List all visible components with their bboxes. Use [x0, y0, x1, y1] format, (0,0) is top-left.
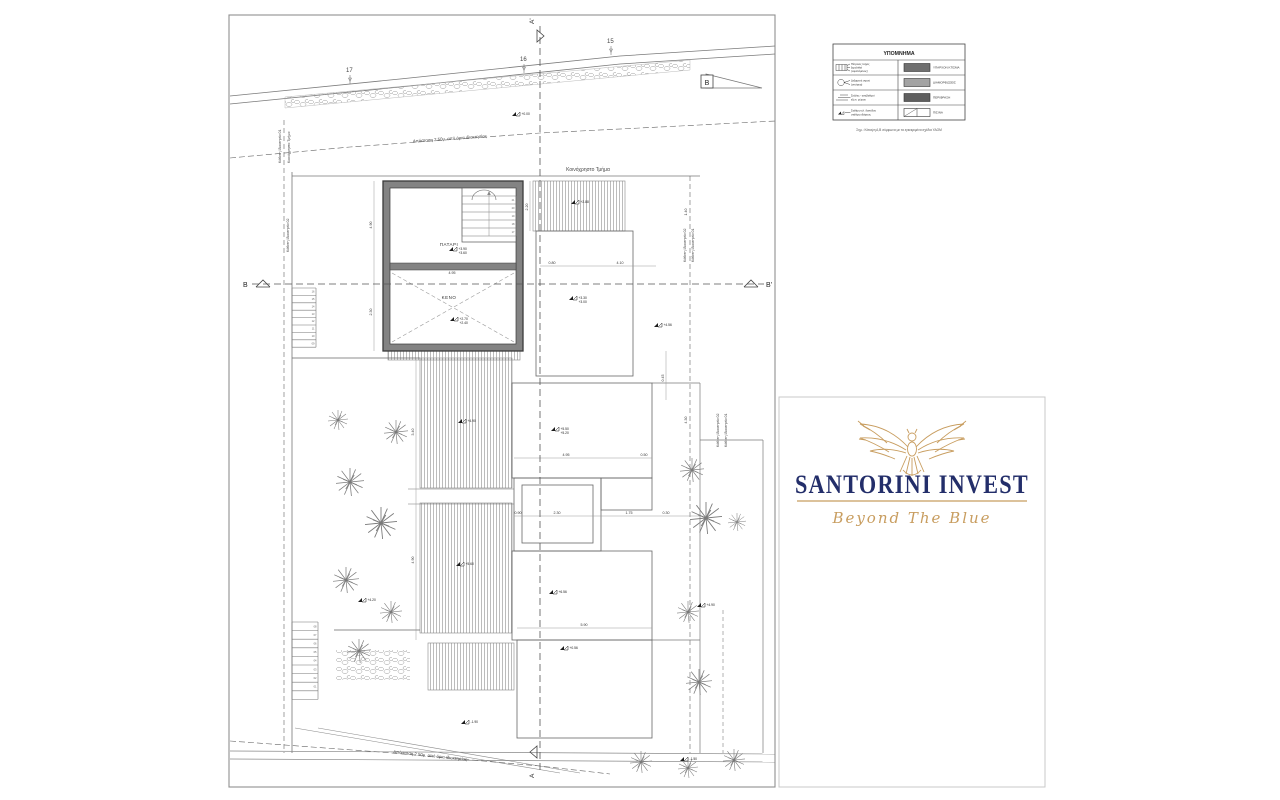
legend-swatch-label: ΥΠΑΡΧΟΝ ΚΤΙΣΜΑ [933, 66, 960, 70]
svg-text:+3.60: +3.60 [459, 251, 468, 255]
legend-swatch-label: ΠΙΣΙΝΑ [933, 111, 943, 115]
svg-text:+4.20: +4.20 [368, 598, 377, 602]
svg-text:+0.00: +0.00 [522, 112, 531, 116]
dimension-label: 0.90 [515, 511, 522, 515]
dimension-label: 1.75 [626, 511, 633, 515]
boundary-label: Κάθετη Ιδιοκτησία 02 [716, 413, 720, 447]
legend-item-label: (υφιστάμενος) [851, 69, 868, 73]
svg-text:+5.60: +5.60 [466, 562, 475, 566]
dimension-label: 0.50 [641, 453, 648, 457]
legend-swatch-label: ΔΙΑΜΟΡΦΩΣΕΙΣ [933, 81, 956, 85]
dimension-label: 4.10 [617, 261, 624, 265]
site-plan-screenshot: B Απόσταση 2.50μ. από όρια ιδιοκτησίας Κ… [0, 0, 1280, 800]
boundary-label: Κάθετη Ιδιοκτησία 01 [691, 228, 695, 262]
room-label-keno: ΚΕΝΟ [442, 295, 457, 300]
boundary-label: Κοινόχρηστο Τμήμα [287, 132, 291, 163]
legend-item-label: (υπόγεια) [851, 82, 862, 86]
svg-text:+6.56: +6.56 [559, 590, 568, 594]
svg-text:+0.56: +0.56 [570, 646, 579, 650]
company-name: SANTORINI INVEST [795, 470, 1029, 499]
legend-item-label: εξωτ. χώρου [851, 97, 866, 101]
legend-title: ΥΠΟΜΝΗΜΑ [883, 51, 914, 57]
dimension-label: 4.90 [411, 557, 415, 564]
section-label-b-left: B [243, 282, 248, 289]
legend: ΥΠΟΜΝΗΜΑ Σημ.: Κάτοψη Α,Β σύμφωνα με τα … [833, 44, 965, 132]
dimension-label: 4.30 [684, 417, 688, 424]
legend-item-label: ξερολιθιά [851, 66, 862, 70]
dimension-label: 2.20 [525, 204, 529, 211]
legend-item-label: Δεξαμενή νερού [851, 79, 871, 83]
dimension-label: 0.45 [661, 375, 665, 382]
dimension-label: 4.95 [449, 271, 456, 275]
boundary-label: Κάθετη Ιδιοκτησία 02 [286, 218, 290, 252]
common-area-label: Κοινόχρηστο Τμήμα [566, 166, 610, 173]
legend-note: Σημ.: Κάτοψη Α,Β σύμφωνα με τα εγκεκριμέ… [856, 128, 942, 132]
boundary-label: Κάθετη Ιδιοκτησία 01 [724, 413, 728, 447]
main-building: ΠΑΤΑΡΙ ΚΕΝΟ [383, 181, 523, 351]
legend-item-label: Στάθμη τελ. δαπέδου [851, 109, 877, 113]
boundary-label: Κάθετη Ιδιοκτησία 02 [683, 228, 687, 262]
dimension-label: 0.80 [549, 261, 556, 265]
logo-panel: SANTORINI INVEST Beyond The Blue [779, 397, 1045, 787]
legend-item-label: Σκάλες - αναβαθμοί [851, 94, 875, 98]
svg-text:-1.90: -1.90 [471, 720, 479, 724]
svg-text:+5.20: +5.20 [561, 431, 570, 435]
svg-text:17: 17 [346, 68, 353, 74]
dimension-label: 5.90 [581, 623, 588, 627]
dimension-label: 0.30 [663, 511, 670, 515]
legend-item-label: στάθμη εδάφους [851, 112, 871, 116]
svg-text:+2.40: +2.40 [460, 321, 469, 325]
section-label-a-bottom: A [529, 773, 536, 778]
svg-text:-1.50: -1.50 [690, 757, 698, 761]
dimension-label: 4.90 [369, 222, 373, 229]
section-label-a-top: A' [529, 18, 536, 24]
stone-cluster [336, 650, 410, 680]
section-label-b-right: B' [766, 282, 772, 289]
dimension-label: 2.30 [369, 309, 373, 316]
svg-text:16: 16 [520, 57, 527, 63]
slope-label: B [705, 80, 710, 87]
dimension-label: 2.30 [554, 511, 561, 515]
boundary-label: Κάθετη Ιδιοκτησία 01 [278, 129, 282, 163]
legend-swatch-label: ΠΕΡΙΦΡΑΞΗ [933, 96, 950, 100]
dimension-label: 4.95 [563, 453, 570, 457]
svg-text:+2.88: +2.88 [581, 200, 590, 204]
svg-text:+3.00: +3.00 [579, 300, 588, 304]
dimension-label: 3.40 [411, 429, 415, 436]
svg-text:+4.90: +4.90 [707, 603, 716, 607]
dimension-label: 1.40 [684, 209, 688, 216]
tagline: Beyond The Blue [831, 509, 991, 527]
legend-item-label: Πέτρινος τοίχος [851, 62, 870, 66]
svg-text:+4.56: +4.56 [664, 323, 673, 327]
svg-text:15: 15 [607, 39, 614, 45]
svg-text:+4.90: +4.90 [468, 419, 477, 423]
room-label-patari: ΠΑΤΑΡΙ [440, 242, 459, 247]
